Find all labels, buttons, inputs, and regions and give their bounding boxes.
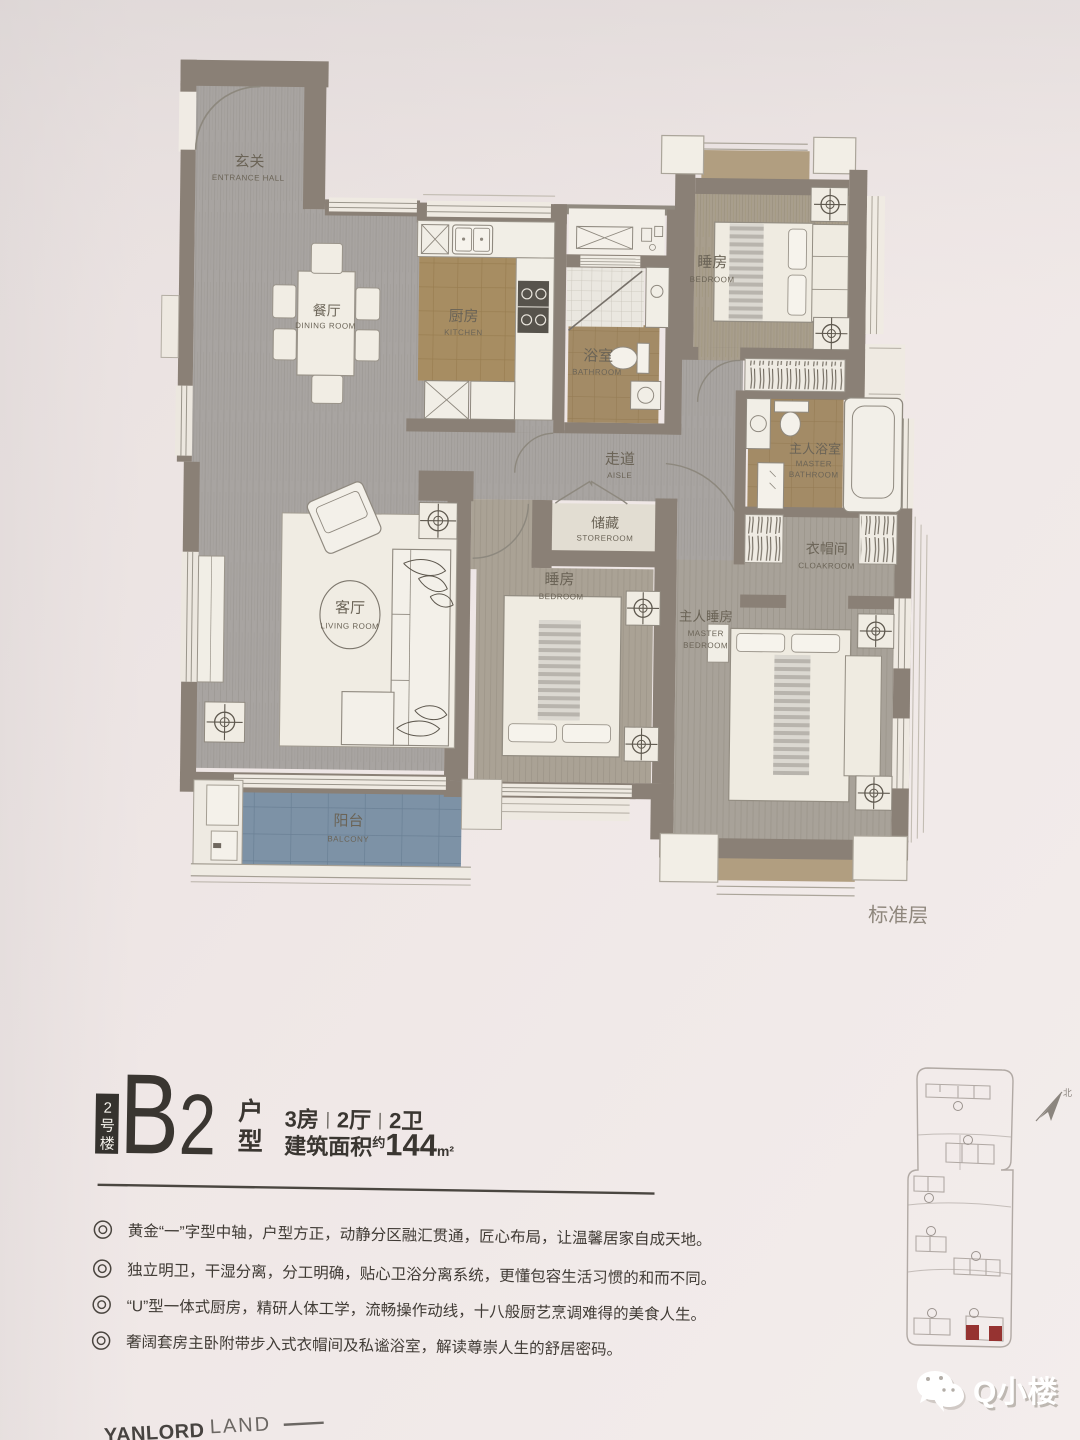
svg-text:户: 户 xyxy=(238,1097,263,1126)
svg-text:储藏: 储藏 xyxy=(591,515,619,531)
svg-text:ENTRANCE HALL: ENTRANCE HALL xyxy=(212,173,285,183)
svg-text:B: B xyxy=(119,1049,180,1178)
svg-text:MASTER: MASTER xyxy=(796,459,832,468)
svg-text:BALCONY: BALCONY xyxy=(327,834,369,844)
svg-text:睡房: 睡房 xyxy=(544,571,574,588)
svg-text:餐厅: 餐厅 xyxy=(313,302,341,318)
svg-text:主人睡房: 主人睡房 xyxy=(679,609,733,625)
svg-text:主人浴室: 主人浴室 xyxy=(789,441,841,457)
svg-text:客厅: 客厅 xyxy=(335,600,365,617)
svg-text:LAND: LAND xyxy=(209,1413,271,1438)
svg-text:BEDROOM: BEDROOM xyxy=(690,275,735,285)
svg-text:衣帽间: 衣帽间 xyxy=(806,540,848,557)
svg-text:MASTER: MASTER xyxy=(688,629,724,638)
svg-text:睡房: 睡房 xyxy=(697,254,727,271)
svg-text:北: 北 xyxy=(1063,1088,1072,1098)
svg-text:厨房: 厨房 xyxy=(449,308,479,325)
svg-text:STOREROOM: STOREROOM xyxy=(576,533,633,543)
svg-text:号: 号 xyxy=(100,1118,115,1135)
svg-text:BEDROOM: BEDROOM xyxy=(539,592,584,602)
svg-text:Q小楼: Q小楼 xyxy=(973,1376,1058,1409)
svg-text:KITCHEN: KITCHEN xyxy=(444,328,483,337)
svg-text:LIVING ROOM: LIVING ROOM xyxy=(320,621,379,631)
svg-text:DINING ROOM: DINING ROOM xyxy=(295,321,356,331)
svg-text:楼: 楼 xyxy=(100,1136,115,1153)
svg-text:走道: 走道 xyxy=(605,451,635,468)
svg-text:BEDROOM: BEDROOM xyxy=(683,641,728,651)
svg-text:2: 2 xyxy=(178,1077,217,1173)
svg-text:AISLE: AISLE xyxy=(607,471,632,480)
svg-text:CLOAKROOM: CLOAKROOM xyxy=(798,561,855,571)
svg-text:BATHROOM: BATHROOM xyxy=(789,470,839,480)
svg-text:浴室: 浴室 xyxy=(583,348,613,365)
svg-text:玄关: 玄关 xyxy=(234,153,264,170)
svg-text:2: 2 xyxy=(103,1100,112,1117)
svg-text:BATHROOM: BATHROOM xyxy=(572,367,622,377)
svg-text:标准层: 标准层 xyxy=(868,903,928,927)
svg-text:阳台: 阳台 xyxy=(333,813,363,830)
svg-text:型: 型 xyxy=(238,1128,263,1156)
